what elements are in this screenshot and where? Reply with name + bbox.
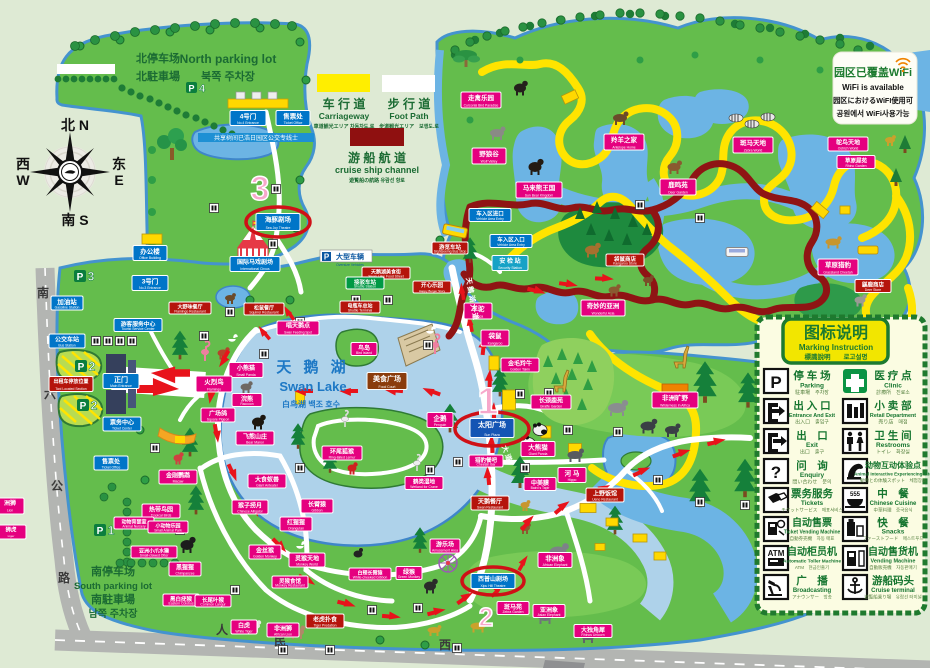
svg-text:標識說明 로고설명: 標識說明 로고설명 <box>805 352 868 361</box>
svg-text:Monkey World: Monkey World <box>296 563 318 567</box>
svg-text:南停车场: 南停车场 <box>91 564 135 578</box>
svg-text:海豚剧场: 海豚剧场 <box>265 215 292 224</box>
svg-text:南駐車場: 南駐車場 <box>91 592 135 606</box>
svg-text:?: ? <box>771 463 781 482</box>
svg-text:金丝猴: 金丝猴 <box>255 547 275 555</box>
svg-text:P: P <box>77 272 84 283</box>
svg-text:快 餐: 快 餐 <box>876 516 909 529</box>
svg-text:国际马戏剧场: 国际马戏剧场 <box>237 258 273 266</box>
svg-text:Golden Takin: Golden Takin <box>510 368 530 372</box>
svg-text:Carriageway: Carriageway <box>319 111 370 121</box>
svg-text:自动售票: 自动售票 <box>792 516 832 529</box>
svg-text:Ticket Office: Ticket Office <box>102 466 121 470</box>
svg-text:Giant Panda: Giant Panda <box>529 452 548 456</box>
svg-text:动物互动体验点: 动物互动体验点 <box>865 460 921 470</box>
svg-text:票务服务: 票务服务 <box>791 487 833 500</box>
svg-text:Vehicle Area Entry: Vehicle Area Entry <box>476 217 504 221</box>
svg-text:奇妙的亚洲: 奇妙的亚洲 <box>587 301 620 310</box>
svg-text:Zebra World: Zebra World <box>744 149 763 153</box>
svg-text:金毛羚牛: 金毛羚牛 <box>507 360 532 368</box>
svg-text:Flamingo Restaurant: Flamingo Restaurant <box>174 310 206 314</box>
svg-text:Penguin: Penguin <box>434 423 447 427</box>
svg-text:鹿鸣苑: 鹿鸣苑 <box>668 180 688 189</box>
svg-text:白虎: 白虎 <box>238 622 250 630</box>
svg-text:袋鼠: 袋鼠 <box>488 331 503 340</box>
svg-text:Swan Feeding Spot: Swan Feeding Spot <box>284 331 312 335</box>
svg-text:공원에서 WiFi사용가능: 공원에서 WiFi사용가능 <box>836 108 909 118</box>
svg-text:共享树间已浩日园区公交专线士: 共享树间已浩日园区公交专线士 <box>214 134 298 142</box>
svg-text:No.4 Entrance: No.4 Entrance <box>237 121 259 125</box>
svg-text:African Lion: African Lion <box>274 633 292 637</box>
svg-text:大熊猫: 大熊猫 <box>528 443 548 452</box>
svg-text:Gasoline Station: Gasoline Station <box>55 306 80 310</box>
svg-text:Chimpanzee: Chimpanzee <box>175 572 194 576</box>
svg-text:Parking: Parking <box>800 383 824 390</box>
svg-text:Bear Manor: Bear Manor <box>246 441 265 445</box>
svg-text:Small Panda: Small Panda <box>236 373 255 377</box>
svg-text:動物との体験スポット 체험장소: 動物との体験スポット 체험장소 <box>860 477 926 484</box>
svg-text:长臂猿: 长臂猿 <box>308 501 327 509</box>
svg-text:Tourist Service Center: Tourist Service Center <box>121 327 155 331</box>
svg-text:アナウンサー 방송: アナウンサー 방송 <box>792 594 832 601</box>
svg-text:Xipu Hill Theatre: Xipu Hill Theatre <box>480 584 505 588</box>
svg-text:河 马: 河 马 <box>565 469 580 478</box>
svg-text:555: 555 <box>850 492 861 498</box>
svg-text:ATM: ATM <box>768 549 785 558</box>
svg-text:上野饭馆: 上野饭馆 <box>593 490 617 498</box>
svg-text:出入口 출입구: 出入口 출입구 <box>795 419 829 426</box>
svg-text:No.3 Entrance: No.3 Entrance <box>139 286 161 290</box>
svg-text:中華料理 중국음식: 中華料理 중국음식 <box>873 507 912 514</box>
svg-text:Office Building: Office Building <box>139 256 161 260</box>
svg-text:Shuttle Station: Shuttle Station <box>354 285 376 289</box>
svg-text:Wetland for Crane: Wetland for Crane <box>410 485 438 489</box>
svg-text:Squirrel Restaurant: Squirrel Restaurant <box>249 311 278 315</box>
svg-text:黑猩猩: 黑猩猩 <box>176 564 194 572</box>
svg-text:Exit: Exit <box>806 442 819 449</box>
svg-text:Sun Plaza: Sun Plaza <box>484 433 500 437</box>
svg-text:Chinese Alligator: Chinese Alligator <box>237 510 263 514</box>
svg-text:South parking lot: South parking lot <box>74 581 153 592</box>
svg-text:Deer Store: Deer Store <box>865 288 882 292</box>
svg-text:4号门: 4号门 <box>240 112 257 121</box>
svg-text:駐車場 주차장: 駐車場 주차장 <box>795 389 829 396</box>
svg-text:North parking lot: North parking lot <box>180 52 277 66</box>
svg-text:Swan Restaurant: Swan Restaurant <box>477 506 503 510</box>
svg-text:医 疗 点: 医 疗 点 <box>874 369 912 382</box>
svg-text:Animal Nursery: Animal Nursery <box>122 525 145 529</box>
svg-text:Sun Bear Kingdom: Sun Bear Kingdom <box>525 194 554 198</box>
svg-text:International Circus: International Circus <box>240 267 270 271</box>
svg-text:Tickets: Tickets <box>801 500 824 507</box>
svg-text:Giant Anteater: Giant Anteater <box>256 484 279 488</box>
svg-text:Kangaroo Store: Kangaroo Store <box>613 262 637 266</box>
svg-text:人: 人 <box>216 622 229 637</box>
svg-text:图标说明: 图标说明 <box>804 323 868 342</box>
svg-text:火烈鸟: 火烈鸟 <box>204 377 224 386</box>
svg-text:南 S: 南 S <box>61 212 88 228</box>
svg-text:Small-clawed Otter: Small-clawed Otter <box>140 554 170 558</box>
svg-text:售票处: 售票处 <box>283 112 303 121</box>
svg-text:票务中心: 票务中心 <box>109 419 134 427</box>
svg-text:3号门: 3号门 <box>142 277 159 286</box>
svg-text:White Tiger: White Tiger <box>235 630 253 634</box>
svg-text:飞熊山庄: 飞熊山庄 <box>243 433 267 441</box>
svg-text:Golden Monkey: Golden Monkey <box>253 555 277 559</box>
svg-text:Bird Island: Bird Island <box>356 351 372 355</box>
svg-text:Happy Burger Story: Happy Burger Story <box>419 289 446 293</box>
svg-text:Small Animal Park: Small Animal Park <box>154 529 182 533</box>
svg-text:Ticket Vending Machine: Ticket Vending Machine <box>784 530 841 536</box>
svg-text:Square Pigeon: Square Pigeon <box>207 418 230 422</box>
svg-text:Clinic: Clinic <box>884 383 902 390</box>
svg-text:天 鹅 湖: 天 鹅 湖 <box>276 358 349 376</box>
svg-text:Cheetah Bar: Cheetah Bar <box>476 463 496 467</box>
svg-text:长颈鹿苑: 长颈鹿苑 <box>539 397 563 405</box>
svg-text:出 入 口: 出 入 口 <box>793 399 830 412</box>
svg-text:Swan Lake: Swan Lake <box>279 379 346 394</box>
svg-text:Marking Instruction: Marking Instruction <box>799 343 873 352</box>
svg-text:P: P <box>80 401 87 412</box>
svg-text:遊覧船の航路 유람선 항로: 遊覧船の航路 유람선 항로 <box>349 177 405 184</box>
svg-text:停 车 场: 停 车 场 <box>793 369 831 382</box>
svg-text:Ring-tailed Lemur: Ring-tailed Lemur <box>329 456 357 460</box>
svg-text:チケットサービス 매표서비스: チケットサービス 매표서비스 <box>781 507 842 514</box>
svg-text:草原猎豹: 草原猎豹 <box>825 260 852 269</box>
svg-text:トイレ 화장실: トイレ 화장실 <box>876 449 910 456</box>
svg-text:W: W <box>16 172 30 188</box>
svg-text:Monkey Restaurant: Monkey Restaurant <box>275 584 304 588</box>
svg-text:老虎扑食: 老虎扑食 <box>312 616 338 624</box>
svg-text:Amusement Area: Amusement Area <box>432 549 458 553</box>
svg-text:遊覧船乗り場 유람선 터미널: 遊覧船乗り場 유람선 터미널 <box>864 594 922 601</box>
svg-text:問い合わせ 문의: 問い合わせ 문의 <box>792 479 831 486</box>
svg-text:问 询: 问 询 <box>796 459 828 472</box>
svg-text:卫 生 间: 卫 生 间 <box>874 429 911 442</box>
svg-text:车 行 道: 车 行 道 <box>323 96 366 111</box>
svg-text:Baird s Tapir: Baird s Tapir <box>531 486 551 490</box>
svg-text:自動販売機 자동판매기: 自動販売機 자동판매기 <box>869 564 917 571</box>
svg-text:天鹅餐厅: 天鹅餐厅 <box>478 498 502 506</box>
svg-text:売り店 매점: 売り店 매점 <box>878 419 907 426</box>
svg-text:Shuttle Terminal: Shuttle Terminal <box>348 309 372 313</box>
svg-text:环尾狐猴: 环尾狐猴 <box>330 448 355 456</box>
svg-text:自动柜员机: 自动柜员机 <box>787 545 837 558</box>
svg-text:非洲象: 非洲象 <box>545 554 565 563</box>
svg-text:Rhinos Unicorn: Rhinos Unicorn <box>581 633 604 637</box>
svg-text:北 N: 北 N <box>61 117 89 133</box>
svg-text:Deer Garden: Deer Garden <box>668 191 688 195</box>
svg-text:Liger: Liger <box>8 534 15 538</box>
svg-text:自动售货机: 自动售货机 <box>868 545 918 558</box>
svg-text:西: 西 <box>439 638 451 652</box>
svg-text:大型车辆: 大型车辆 <box>336 252 364 261</box>
svg-text:鸵鸟天地: 鸵鸟天地 <box>836 139 860 147</box>
svg-text:診療所 진료소: 診療所 진료소 <box>876 389 910 396</box>
svg-text:企鹅: 企鹅 <box>433 414 448 423</box>
svg-text:Orangutan: Orangutan <box>288 527 304 531</box>
svg-text:Rhino Garden: Rhino Garden <box>845 164 866 168</box>
svg-text:园区におけるWiFI使用可: 园区におけるWiFI使用可 <box>833 96 913 105</box>
svg-text:Zebra Garden: Zebra Garden <box>502 610 523 614</box>
svg-text:小 卖 部: 小 卖 部 <box>873 399 912 412</box>
svg-text:公: 公 <box>51 479 63 493</box>
svg-text:Cursorial Bird Paradise: Cursorial Bird Paradise <box>464 104 499 108</box>
svg-text:中 餐: 中 餐 <box>877 487 909 500</box>
svg-text:Eastern Colobus: Eastern Colobus <box>168 602 193 606</box>
svg-text:Giraffe Garden: Giraffe Garden <box>540 405 562 409</box>
svg-text:太阳广场: 太阳广场 <box>478 420 506 429</box>
svg-text:Snacks: Snacks <box>882 529 905 536</box>
svg-text:Main Entrance: Main Entrance <box>110 384 132 388</box>
svg-text:Food Court: Food Court <box>379 385 396 389</box>
svg-text:Grassland Cheetah: Grassland Cheetah <box>823 271 852 275</box>
svg-text:马来熊王国: 马来熊王国 <box>523 183 556 192</box>
svg-text:Kangaroo: Kangaroo <box>488 342 503 346</box>
svg-text:Ueno Restaurant: Ueno Restaurant <box>592 498 618 502</box>
svg-text:Gibbon: Gibbon <box>312 509 323 513</box>
svg-text:Bus Station: Bus Station <box>58 344 75 348</box>
svg-text:Flamingo: Flamingo <box>207 388 221 392</box>
svg-text:唱天鹅点: 唱天鹅点 <box>286 322 310 330</box>
svg-text:小熊猫: 小熊猫 <box>236 364 255 372</box>
svg-text:Sea Joy Theatre: Sea Joy Theatre <box>266 226 291 230</box>
svg-text:大食蚁兽: 大食蚁兽 <box>255 476 279 484</box>
svg-text:红猩猩: 红猩猩 <box>287 519 305 527</box>
svg-text:游船码头: 游船码头 <box>872 574 914 587</box>
svg-text:Vehicle Area Entry: Vehicle Area Entry <box>497 243 525 247</box>
svg-text:金刚鹦鹉: 金刚鹦鹉 <box>165 472 190 480</box>
svg-text:African Elephant: African Elephant <box>543 563 568 567</box>
svg-text:正门: 正门 <box>114 375 128 384</box>
svg-text:ファーストフード 매스트푸드: ファーストフード 매스트푸드 <box>863 535 924 542</box>
svg-text:售票处: 售票处 <box>102 458 121 466</box>
svg-text:2: 2 <box>89 360 96 374</box>
svg-text:开心乐园: 开心乐园 <box>421 281 444 289</box>
svg-text:走禽乐园: 走禽乐园 <box>467 93 495 102</box>
svg-text:安 检 站: 安 检 站 <box>499 257 520 265</box>
svg-text:西普山剧场: 西普山剧场 <box>478 575 508 583</box>
svg-text:出租车停放位置: 出租车停放位置 <box>53 378 88 385</box>
svg-text:南: 南 <box>37 285 49 300</box>
svg-text:公交车站: 公交车站 <box>55 336 79 344</box>
svg-text:西: 西 <box>16 156 30 172</box>
svg-text:Cruise terminal: Cruise terminal <box>871 588 915 594</box>
svg-text:Entrance And Exit: Entrance And Exit <box>789 413 835 419</box>
svg-text:美食广场: 美食广场 <box>373 374 401 383</box>
svg-text:步 行 道: 步 行 道 <box>388 96 431 111</box>
svg-text:ATM 현금인출기: ATM 현금인출기 <box>795 564 829 571</box>
svg-text:Antelope Home: Antelope Home <box>612 146 635 150</box>
svg-text:Raccoon: Raccoon <box>240 402 253 406</box>
svg-text:P: P <box>97 526 104 537</box>
svg-text:Restrooms: Restrooms <box>876 442 910 449</box>
svg-text:Security Station: Security Station <box>498 266 522 270</box>
svg-text:游 船 航 道: 游 船 航 道 <box>348 150 406 165</box>
svg-text:Hippo: Hippo <box>568 478 577 482</box>
svg-text:路: 路 <box>58 570 71 585</box>
svg-text:热带鸟园: 热带鸟园 <box>149 506 173 514</box>
svg-text:cruise ship channel: cruise ship channel <box>335 165 419 175</box>
svg-text:Animal Interactive Experiencin: Animal Interactive Experiencing Site <box>854 472 930 477</box>
svg-text:P: P <box>324 253 330 262</box>
svg-text:Green Monkey: Green Monkey <box>398 575 421 579</box>
svg-text:Macaw: Macaw <box>173 480 184 484</box>
svg-text:园区已覆盖WiFi: 园区已覆盖WiFi <box>834 65 912 79</box>
svg-text:Wolf Valley: Wolf Valley <box>481 160 498 164</box>
svg-text:猴子捞月: 猴子捞月 <box>237 502 262 510</box>
svg-text:广 播: 广 播 <box>796 574 828 587</box>
svg-text:Vending Machine: Vending Machine <box>871 559 916 565</box>
svg-text:野狼谷: 野狼谷 <box>479 149 499 158</box>
svg-text:White-cheeked Gibbon: White-cheeked Gibbon <box>353 576 388 580</box>
svg-text:非洲狮: 非洲狮 <box>274 625 292 633</box>
svg-text:E: E <box>114 172 123 188</box>
svg-text:非洲旷野: 非洲旷野 <box>662 393 689 402</box>
svg-text:出 口: 出 口 <box>796 429 828 442</box>
svg-text:出口 출구: 出口 출구 <box>800 449 825 456</box>
svg-text:Broadcasting: Broadcasting <box>793 588 832 594</box>
svg-text:P: P <box>78 362 85 373</box>
svg-text:WiFi is available: WiFi is available <box>842 83 904 92</box>
svg-text:Ticket Center: Ticket Center <box>112 427 133 431</box>
svg-text:P: P <box>770 373 781 392</box>
svg-text:游乐场: 游乐场 <box>436 541 454 549</box>
svg-text:北停车场: 北停车场 <box>136 51 180 65</box>
svg-text:狮虎: 狮虎 <box>4 526 17 534</box>
svg-text:Chinese Cuisine: Chinese Cuisine <box>870 501 917 507</box>
svg-text:1: 1 <box>477 381 498 423</box>
svg-text:3: 3 <box>88 270 95 284</box>
svg-text:3: 3 <box>251 170 270 208</box>
svg-text:办公楼: 办公楼 <box>140 247 160 256</box>
svg-text:북쪽 주차장: 북쪽 주차장 <box>201 69 255 83</box>
svg-text:自動券売機 자동 매표: 自動券売機 자동 매표 <box>790 535 835 542</box>
svg-text:Asian Elephant: Asian Elephant <box>538 613 561 617</box>
svg-text:东: 东 <box>112 156 126 172</box>
svg-text:Taxi Located Section: Taxi Located Section <box>55 387 86 391</box>
svg-text:Retail Department: Retail Department <box>870 413 916 419</box>
svg-text:P: P <box>188 84 194 94</box>
svg-text:Wilderness in Africa: Wilderness in Africa <box>660 404 690 408</box>
svg-text:2: 2 <box>479 602 493 632</box>
svg-text:Common Langur: Common Langur <box>200 603 226 607</box>
svg-text:Foot Path: Foot Path <box>389 111 428 121</box>
svg-text:羚羊之家: 羚羊之家 <box>611 135 638 144</box>
svg-text:洲狮: 洲狮 <box>4 499 16 507</box>
svg-text:4: 4 <box>199 83 206 95</box>
svg-text:Sightseeing Bus Stop: Sightseeing Bus Stop <box>434 250 467 254</box>
svg-text:白鸟湖 백조 호수: 白鸟湖 백조 호수 <box>282 399 341 409</box>
svg-text:斑马天地: 斑马天地 <box>740 138 767 147</box>
svg-text:Ostrich World: Ostrich World <box>838 147 859 151</box>
svg-text:Ticket Office: Ticket Office <box>284 121 303 125</box>
svg-text:北駐車場: 北駐車場 <box>136 69 180 83</box>
svg-text:남쪽 주차장: 남쪽 주차장 <box>89 607 139 620</box>
svg-text:Oversize Vehicles: Oversize Vehicles <box>336 263 364 267</box>
svg-text:Wonderful Asia: Wonderful Asia <box>592 312 615 316</box>
svg-text:广场鸽: 广场鸽 <box>209 410 227 418</box>
svg-text:Automatic Toller Machine: Automatic Toller Machine <box>783 559 841 565</box>
svg-text:Lion: Lion <box>7 509 13 513</box>
svg-text:灵猴天地: 灵猴天地 <box>294 555 319 563</box>
svg-text:Tiger Predation: Tiger Predation <box>313 624 336 628</box>
svg-text:Enquiry: Enquiry <box>800 472 825 479</box>
svg-text:2: 2 <box>91 399 98 413</box>
